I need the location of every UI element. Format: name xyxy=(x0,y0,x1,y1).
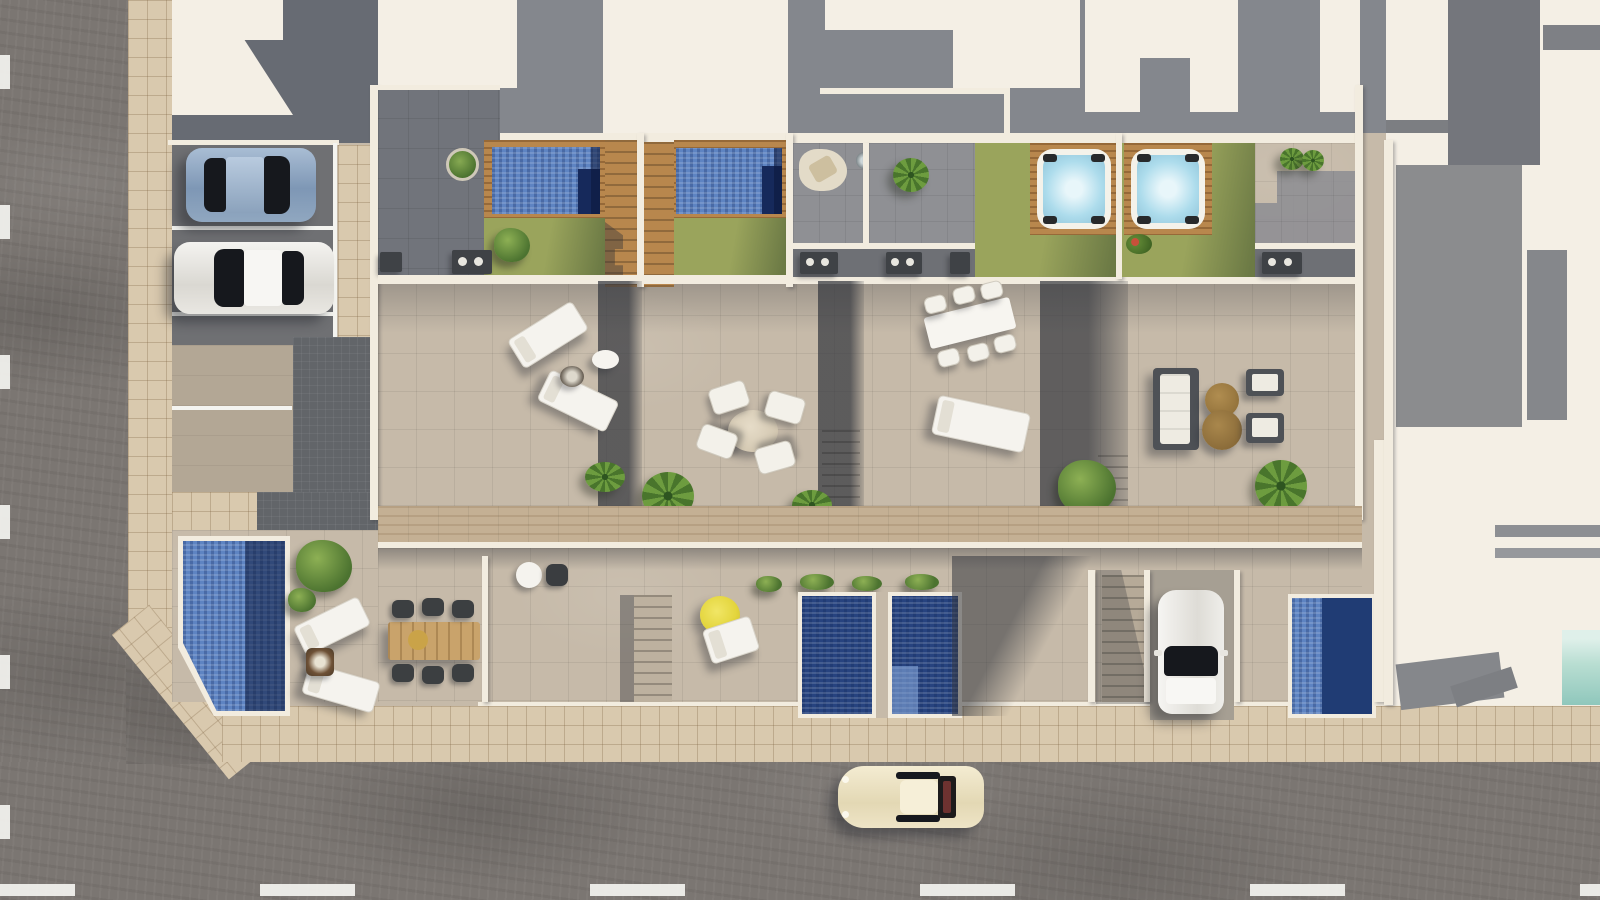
unit1-lawn-tree xyxy=(494,228,530,262)
unit4-bbq xyxy=(1262,252,1302,274)
roof-slab-6 xyxy=(1320,0,1360,112)
corner-chair xyxy=(452,600,474,618)
corner-pool-water xyxy=(183,541,285,711)
bbq-burner xyxy=(1284,258,1292,266)
corner-chair xyxy=(422,598,444,616)
hot-tub-pad xyxy=(1137,154,1151,162)
unit2-lawn xyxy=(674,218,786,277)
corner-chair xyxy=(422,666,444,684)
white-hatchback-mirror xyxy=(1154,650,1162,656)
plunge-pool-1-water xyxy=(802,596,872,714)
unit3-hot-tub-deck xyxy=(1030,143,1118,235)
unit1-rooftop-pool xyxy=(492,147,600,214)
corner-fire-pit xyxy=(306,648,334,676)
unit3-courtyard-palm xyxy=(893,158,929,192)
white-sedan-windshield xyxy=(214,249,244,307)
white-sedan-roof xyxy=(244,250,282,306)
unit2-rooftop-pool xyxy=(676,148,782,214)
shrub xyxy=(852,576,882,591)
plunge-pool-divider xyxy=(876,592,888,718)
plunge-pool-3-shelf xyxy=(1292,598,1322,714)
wall-corner-yard xyxy=(482,556,488,702)
t1-palm-1 xyxy=(585,462,625,492)
roof-slab-3 xyxy=(825,0,953,30)
bbq-burner xyxy=(474,257,483,266)
corner-table-centerpiece xyxy=(408,630,428,650)
flower-cluster xyxy=(1126,234,1152,254)
driveway-wall-right xyxy=(1234,570,1240,702)
unit3-ac-unit xyxy=(950,252,970,274)
patio-diagonal-shadow xyxy=(952,556,1102,716)
deck-walkway-band xyxy=(378,506,1362,542)
cream-coupe-side-window-top xyxy=(896,772,940,779)
driveway-pavers-2 xyxy=(255,492,378,530)
sidewalk-vertical xyxy=(128,0,174,632)
t4-armchair-cushion xyxy=(1252,418,1278,437)
lane-markings-bottom xyxy=(0,884,1600,896)
parking-line-3 xyxy=(172,406,292,410)
wall-lower-1 xyxy=(1088,570,1095,702)
plunge-pool-2 xyxy=(888,592,962,718)
driveway-pavers xyxy=(293,337,378,497)
aerial-render-scene xyxy=(0,0,1600,900)
parking-wall-line xyxy=(168,140,339,145)
shrub xyxy=(800,574,834,590)
t3-chair xyxy=(951,284,976,306)
roof-slab-1 xyxy=(378,0,517,88)
t4-armchair-cushion xyxy=(1252,374,1278,391)
t4-palm xyxy=(1255,460,1307,512)
outer-wall-right xyxy=(1355,85,1363,520)
t1-side-table xyxy=(592,350,619,369)
cream-coupe-side-window-bottom xyxy=(896,815,940,822)
corner-chair xyxy=(392,664,414,682)
blue-sedan-roof xyxy=(226,157,264,213)
plunge-pool-2-water xyxy=(892,596,958,714)
entry-path xyxy=(338,145,370,337)
cream-coupe-headlight xyxy=(842,811,849,818)
courtyard-wall-v xyxy=(1004,88,1010,133)
unit1-patio-wall xyxy=(378,85,500,90)
hot-tub-pad xyxy=(1091,154,1105,162)
wall-unit2-3 xyxy=(786,133,793,287)
neighbour-roof-gray-1 xyxy=(1448,0,1540,165)
t4-coffee-table-2 xyxy=(1202,410,1242,450)
driveway-wall-left xyxy=(1144,570,1150,702)
cream-coupe-rear-glass-tint xyxy=(943,781,951,813)
unit1-ac-unit xyxy=(380,252,402,272)
unit3-bbq-2 xyxy=(886,252,922,274)
neighbour-roof-gray-4 xyxy=(1527,250,1567,420)
blue-sedan xyxy=(186,148,316,222)
hot-tub-pad xyxy=(1185,154,1199,162)
courtyard-rug xyxy=(799,149,847,191)
courtyard-wall-h xyxy=(820,88,1010,94)
bbq-sink xyxy=(806,258,814,266)
wall-unit1-2 xyxy=(637,133,644,287)
shrub xyxy=(905,574,939,590)
neighbour-boundary-wall xyxy=(1384,140,1393,705)
white-hatchback-windshield xyxy=(1164,646,1218,676)
hot-tub-pad xyxy=(1185,216,1199,224)
bistro-table xyxy=(516,562,542,588)
hot-tub-water xyxy=(1043,155,1105,223)
bbq-sink xyxy=(458,257,467,266)
walkway-light xyxy=(172,492,257,530)
neighbour-courtyard xyxy=(1396,165,1522,427)
cream-coupe-headlight xyxy=(842,776,849,783)
corner-chair xyxy=(392,600,414,618)
hot-tub-pad xyxy=(1043,216,1057,224)
neighbour-roof-gray-2 xyxy=(1386,120,1448,133)
unit4-hot-tub xyxy=(1131,149,1205,229)
t1-fire-pit xyxy=(560,366,584,387)
neighbour-gray-band-1 xyxy=(1495,525,1600,537)
lane-markings-left xyxy=(0,0,10,880)
roof-slab-4 xyxy=(953,0,1080,88)
neighbour-gray-band-2 xyxy=(1495,548,1600,558)
white-sedan xyxy=(174,242,334,314)
unit4-patio-palm-2 xyxy=(1302,150,1324,171)
roof-slab-2 xyxy=(603,0,788,133)
corner-chair xyxy=(452,664,474,682)
unit2-pool-edge-shadow xyxy=(774,148,782,214)
plunge-pool-3-water xyxy=(1322,598,1372,714)
roof-notch xyxy=(1140,58,1190,112)
unit2-stairs xyxy=(644,142,674,287)
unit3-hot-tub xyxy=(1037,149,1111,229)
hot-tub-pad xyxy=(1091,216,1105,224)
plunge-pool-1 xyxy=(798,592,876,718)
white-sedan-rear-window xyxy=(282,251,304,305)
bbq-burner xyxy=(821,258,829,266)
corner-yard-plant-small xyxy=(288,588,316,612)
hot-tub-water xyxy=(1137,155,1199,223)
neighbour-roof-gray-3 xyxy=(1543,25,1600,50)
cream-coupe-rear-window xyxy=(938,776,956,818)
bbq-burner xyxy=(906,258,914,266)
white-hatchback-mirror xyxy=(1220,650,1228,656)
parking-line-1 xyxy=(172,226,335,230)
corner-yard-plant xyxy=(296,540,352,592)
courtyard-lounge-chair xyxy=(808,154,839,183)
outer-wall-left xyxy=(370,85,378,520)
unit3-courtyard-2 xyxy=(869,143,975,243)
plunge-pool-3 xyxy=(1288,594,1376,718)
corner-pool-deep xyxy=(245,541,285,711)
shrub xyxy=(756,576,782,592)
unit1-dark-patio xyxy=(378,88,500,275)
bbq-sink xyxy=(891,258,899,266)
unit3-bbq-1 xyxy=(800,252,838,274)
white-hatchback-roof xyxy=(1166,678,1216,704)
corner-building-roof-highlight xyxy=(172,0,283,40)
hot-tub-pad xyxy=(1137,216,1151,224)
potted-tree xyxy=(446,148,479,181)
unit1-bbq-counter xyxy=(452,250,492,274)
cream-coupe-roof xyxy=(900,780,938,814)
corner-dining-table xyxy=(388,622,480,660)
white-hatchback xyxy=(1158,590,1224,714)
t4-armchair-1 xyxy=(1246,369,1284,396)
blue-sedan-rear-window xyxy=(204,158,226,212)
neighbour-pool xyxy=(1562,630,1600,705)
bistro-chair xyxy=(546,564,568,586)
t4-sofa xyxy=(1153,368,1199,450)
unit4-patio-palm-1 xyxy=(1280,148,1304,170)
bbq-sink xyxy=(1268,258,1276,266)
lower-stairs-1 xyxy=(634,595,672,702)
blue-sedan-windshield xyxy=(264,156,290,214)
unit4-hot-tub-deck xyxy=(1124,143,1212,235)
t4-armchair-2 xyxy=(1246,413,1284,443)
cream-classic-coupe xyxy=(838,766,984,828)
terrace-row-shadow xyxy=(378,277,1362,333)
unit1-pool-edge-shadow xyxy=(591,147,600,214)
t4-sofa-cushions xyxy=(1160,374,1190,444)
bottom-road xyxy=(0,762,1600,900)
plunge-pool-2-shelf xyxy=(892,666,918,714)
hot-tub-pad xyxy=(1043,154,1057,162)
stairs1-shadow xyxy=(620,595,634,702)
